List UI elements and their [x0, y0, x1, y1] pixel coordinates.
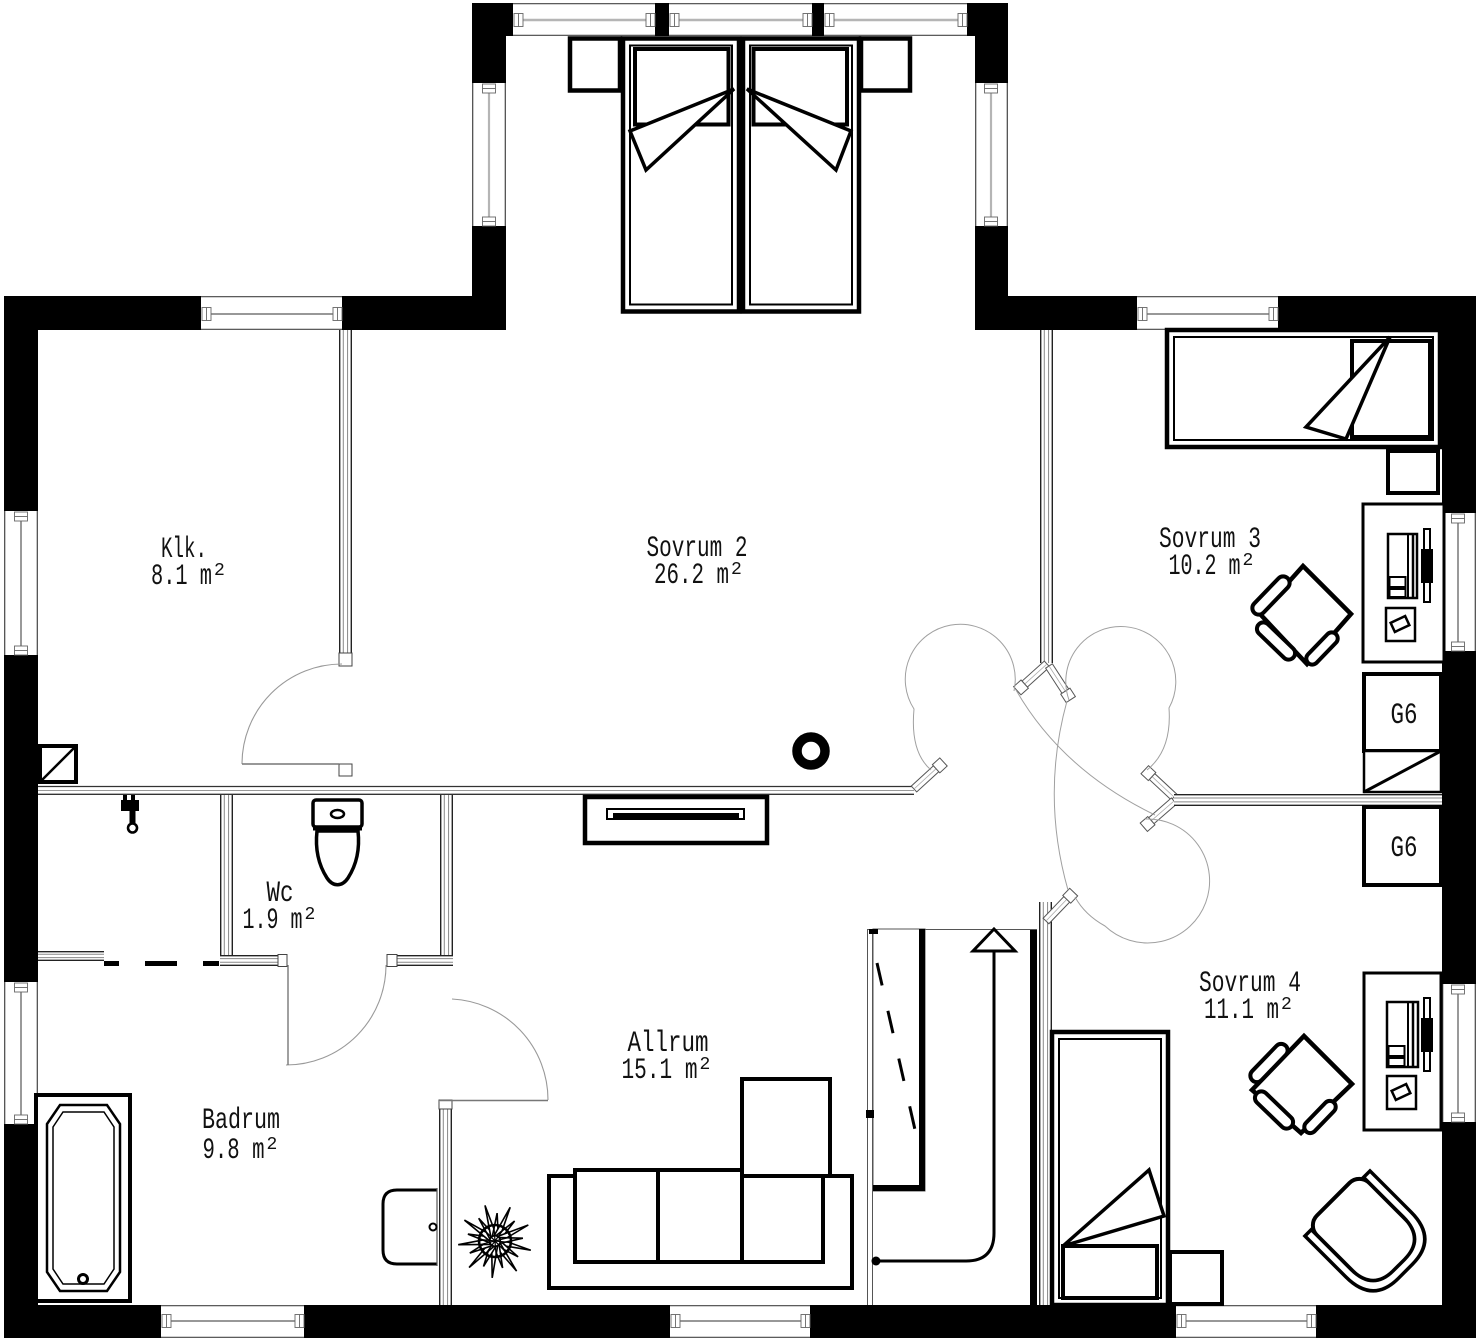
svg-text:15.1 m2: 15.1 m2: [622, 1054, 711, 1088]
svg-text:G6: G6: [1391, 699, 1418, 733]
svg-text:G6: G6: [1391, 832, 1418, 866]
svg-text:26.2 m2: 26.2 m2: [654, 559, 742, 593]
svg-text:11.1 m2: 11.1 m2: [1204, 994, 1292, 1028]
svg-text:Badrum: Badrum: [202, 1104, 280, 1138]
